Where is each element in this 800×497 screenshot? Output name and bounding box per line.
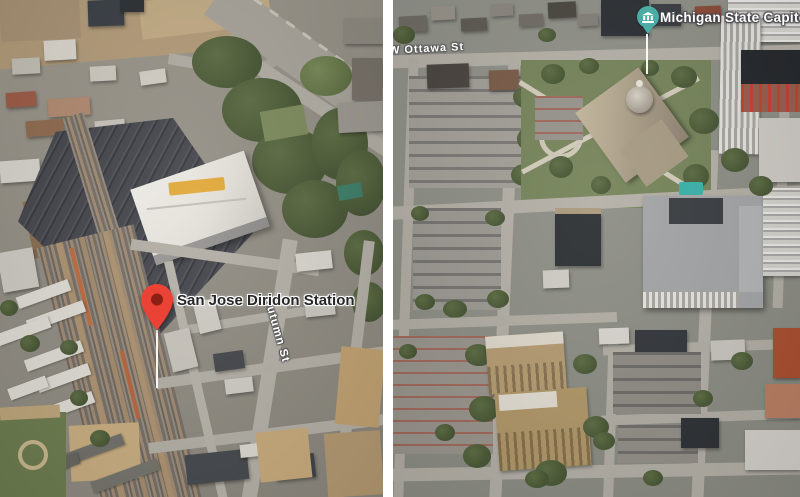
building [352,58,382,100]
trees [0,300,18,316]
trees [70,390,88,406]
warehouse [0,159,41,184]
building [90,65,117,81]
trees [721,148,749,172]
building [543,270,570,289]
trees [749,176,773,196]
parking-lot [409,76,521,188]
trees [435,424,455,441]
trees [399,344,417,359]
brick-building [485,331,567,394]
roof-panel [739,206,763,292]
trees [689,108,719,134]
trees [549,156,573,178]
dirt-lot [256,427,313,482]
building-facade [643,292,739,308]
trees [411,206,429,221]
building [759,118,800,182]
capitol-poi-marker-tip [643,27,653,34]
parking-lot [613,352,701,414]
trees [393,26,415,44]
brick-buildings-block [465,332,595,480]
building [43,39,76,61]
trees [525,470,549,488]
trees [60,340,78,355]
capitol-dome [626,86,653,113]
building [745,430,800,470]
rooftop-pool [679,182,703,195]
roof-section [499,391,558,411]
right-map-view[interactable]: Michigan State Capitol W Ottawa St [393,0,800,497]
trees [485,210,505,226]
capitol-building [588,60,693,190]
trees [443,300,467,318]
arena-roof-logo [168,177,225,196]
map-pin-icon [141,284,173,330]
poi-ground-line [646,34,648,74]
dual-aerial-map-screenshot: San Jose Diridon Station Autumn St [0,0,800,497]
left-map-view[interactable]: San Jose Diridon Station Autumn St [0,0,383,497]
dirt-lot [324,430,383,497]
apartment-building [7,376,49,401]
place-label-capitol[interactable]: Michigan State Capitol [660,10,800,25]
building [337,101,383,133]
place-label-diridon[interactable]: San Jose Diridon Station [177,292,355,309]
trees [731,352,753,370]
dirt-field [0,0,81,42]
government-building-icon [642,12,654,23]
building [88,0,125,27]
building [295,250,333,272]
park-lawn [0,412,66,497]
building [765,384,800,418]
warehouse [0,247,39,293]
trees [541,64,565,84]
red-pin-marker[interactable] [141,284,173,335]
park-circle-feature [18,440,48,470]
house-roof [431,5,456,20]
building [599,327,630,344]
building [427,63,470,88]
office-building [643,196,763,308]
house-roof [519,13,544,26]
arena-roof-seam [147,198,247,210]
trees [487,290,509,308]
pin-ground-line [156,330,158,388]
trees [415,294,435,310]
trees [573,354,597,374]
trees [90,430,110,447]
building [120,0,144,12]
dark-roof-building [681,418,719,448]
trees [643,470,663,486]
building [224,376,254,394]
trees [463,444,491,468]
red-roof-building [6,91,37,108]
orange-roof-building [773,328,800,378]
dirt-lot [335,346,383,428]
trees [693,390,713,407]
building [139,68,167,85]
rooftop-plaza [741,84,800,112]
dome-spire [636,80,643,87]
trees [538,28,556,42]
trees [20,335,40,352]
house-roof [578,13,599,26]
parking-rows [535,96,583,140]
house-roof [491,3,514,16]
building [344,18,383,44]
road [393,461,800,481]
capitol-poi-marker[interactable] [637,6,659,28]
house-roof [461,17,488,31]
house-roof [548,1,577,18]
brick-building [494,387,591,471]
building [489,69,520,90]
building [763,188,800,276]
building [12,57,41,74]
roof-strip [485,331,564,348]
dark-roof-section [669,198,723,224]
dark-roof-building [555,214,601,266]
trees [593,432,615,450]
trees [300,56,352,96]
